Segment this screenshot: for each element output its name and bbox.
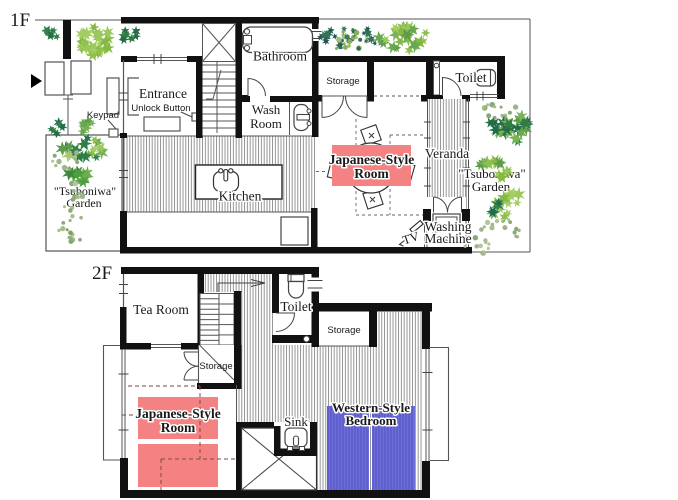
svg-text:Entrance: Entrance xyxy=(139,86,187,101)
svg-text:Toilet: Toilet xyxy=(280,299,312,314)
svg-text:Bedroom: Bedroom xyxy=(345,413,396,428)
svg-text:Keypad: Keypad xyxy=(87,110,119,121)
svg-text:Sink: Sink xyxy=(284,414,308,429)
svg-text:Room: Room xyxy=(354,166,389,181)
svg-text:Room: Room xyxy=(250,116,282,131)
svg-text:Storage: Storage xyxy=(326,76,359,87)
svg-text:Storage: Storage xyxy=(327,325,360,336)
svg-text:Storage: Storage xyxy=(199,361,232,372)
svg-text:Japanese-Style: Japanese-Style xyxy=(329,152,415,167)
svg-text:Bathroom: Bathroom xyxy=(253,49,307,64)
svg-text:1F: 1F xyxy=(10,10,30,31)
svg-text:2F: 2F xyxy=(92,263,112,284)
svg-text:Room: Room xyxy=(161,420,196,435)
svg-text:Japanese-Style: Japanese-Style xyxy=(135,406,221,421)
svg-text:Tea Room: Tea Room xyxy=(133,302,189,317)
svg-text:Veranda: Veranda xyxy=(425,146,469,161)
svg-text:Toilet: Toilet xyxy=(455,70,487,85)
svg-text:Machine: Machine xyxy=(424,231,471,246)
svg-text:Kitchen: Kitchen xyxy=(219,189,262,204)
svg-text:Wash: Wash xyxy=(252,102,281,117)
